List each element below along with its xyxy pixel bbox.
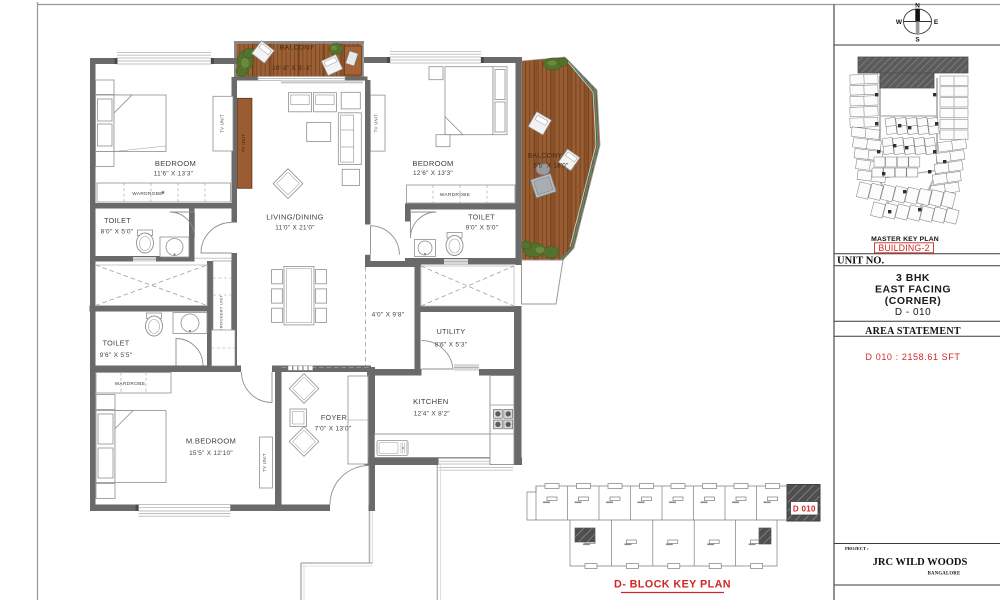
- svg-text:7'0" X 13'0": 7'0" X 13'0": [315, 426, 352, 433]
- svg-text:UNIT NO.: UNIT NO.: [837, 255, 884, 266]
- svg-text:TV UNIT: TV UNIT: [262, 453, 267, 472]
- svg-text:E: E: [934, 19, 939, 26]
- svg-text:M.BEDROOM: M.BEDROOM: [186, 437, 236, 446]
- svg-text:11'6" X 13'3": 11'6" X 13'3": [154, 171, 194, 178]
- svg-text:TOILET: TOILET: [468, 213, 495, 222]
- svg-text:W: W: [896, 19, 903, 26]
- svg-text:TOILET: TOILET: [103, 339, 130, 348]
- svg-text:8'6" X 5'3": 8'6" X 5'3": [435, 342, 468, 349]
- svg-text:(CORNER): (CORNER): [885, 295, 942, 307]
- svg-text:9'6" X 5'5": 9'6" X 5'5": [100, 352, 133, 359]
- svg-text:BALCONY: BALCONY: [528, 153, 563, 160]
- svg-text:10'-8" X 9'-3": 10'-8" X 9'-3": [272, 65, 312, 72]
- svg-text:8'0" X 5'0": 8'0" X 5'0": [101, 229, 134, 236]
- svg-text:12'6" X 13'3": 12'6" X 13'3": [413, 170, 453, 177]
- svg-text:N: N: [915, 3, 920, 10]
- svg-text:AREA STATEMENT: AREA STATEMENT: [865, 326, 961, 337]
- svg-text:JRC WILD WOODS: JRC WILD WOODS: [873, 557, 968, 568]
- svg-text:BEDROOM: BEDROOM: [155, 159, 196, 168]
- svg-text:WARDROBE: WARDROBE: [132, 191, 162, 197]
- svg-text:KITCHEN: KITCHEN: [413, 397, 448, 406]
- svg-text:3 BHK: 3 BHK: [896, 272, 930, 284]
- svg-text:D 010 : 2158.61 SFT: D 010 : 2158.61 SFT: [866, 352, 961, 362]
- svg-text:TOILET: TOILET: [104, 216, 131, 225]
- svg-text:5'5" X 18'0": 5'5" X 18'0": [533, 163, 568, 170]
- svg-text:WARDROBE: WARDROBE: [115, 381, 145, 387]
- svg-text:12'4" X 8'2": 12'4" X 8'2": [414, 411, 450, 418]
- svg-text:D- BLOCK KEY PLAN: D- BLOCK KEY PLAN: [614, 579, 731, 591]
- svg-text:WARDROBE: WARDROBE: [440, 192, 470, 198]
- svg-text:BANGALORE: BANGALORE: [928, 572, 961, 577]
- svg-text:BALCONY: BALCONY: [280, 45, 315, 52]
- svg-text:TV UNIT: TV UNIT: [219, 114, 224, 133]
- svg-text:11'0" X 21'0": 11'0" X 21'0": [275, 225, 315, 232]
- svg-text:UTILITY: UTILITY: [437, 327, 466, 336]
- svg-text:TV UNIT: TV UNIT: [374, 114, 379, 133]
- svg-text:D - 010: D - 010: [895, 307, 931, 318]
- svg-text:D 010: D 010: [793, 505, 816, 514]
- svg-text:PROJECT :: PROJECT :: [845, 546, 869, 551]
- svg-text:15'5" X 12'10": 15'5" X 12'10": [189, 450, 233, 457]
- svg-text:FOYER: FOYER: [321, 413, 347, 422]
- svg-text:EAST FACING: EAST FACING: [875, 284, 951, 296]
- svg-text:MASTER KEY PLAN: MASTER KEY PLAN: [871, 236, 939, 243]
- svg-text:BUILDING-2: BUILDING-2: [878, 243, 929, 253]
- svg-text:S: S: [915, 37, 920, 44]
- svg-text:9'0" X 5'0": 9'0" X 5'0": [466, 225, 499, 232]
- svg-text:BEDROOM: BEDROOM: [412, 159, 453, 168]
- svg-text:LIVING/DINING: LIVING/DINING: [266, 213, 324, 222]
- svg-text:CROCKERY UNIT: CROCKERY UNIT: [218, 294, 223, 331]
- svg-text:TV UNIT: TV UNIT: [241, 134, 246, 153]
- svg-text:4'0" X 9'8": 4'0" X 9'8": [372, 312, 405, 319]
